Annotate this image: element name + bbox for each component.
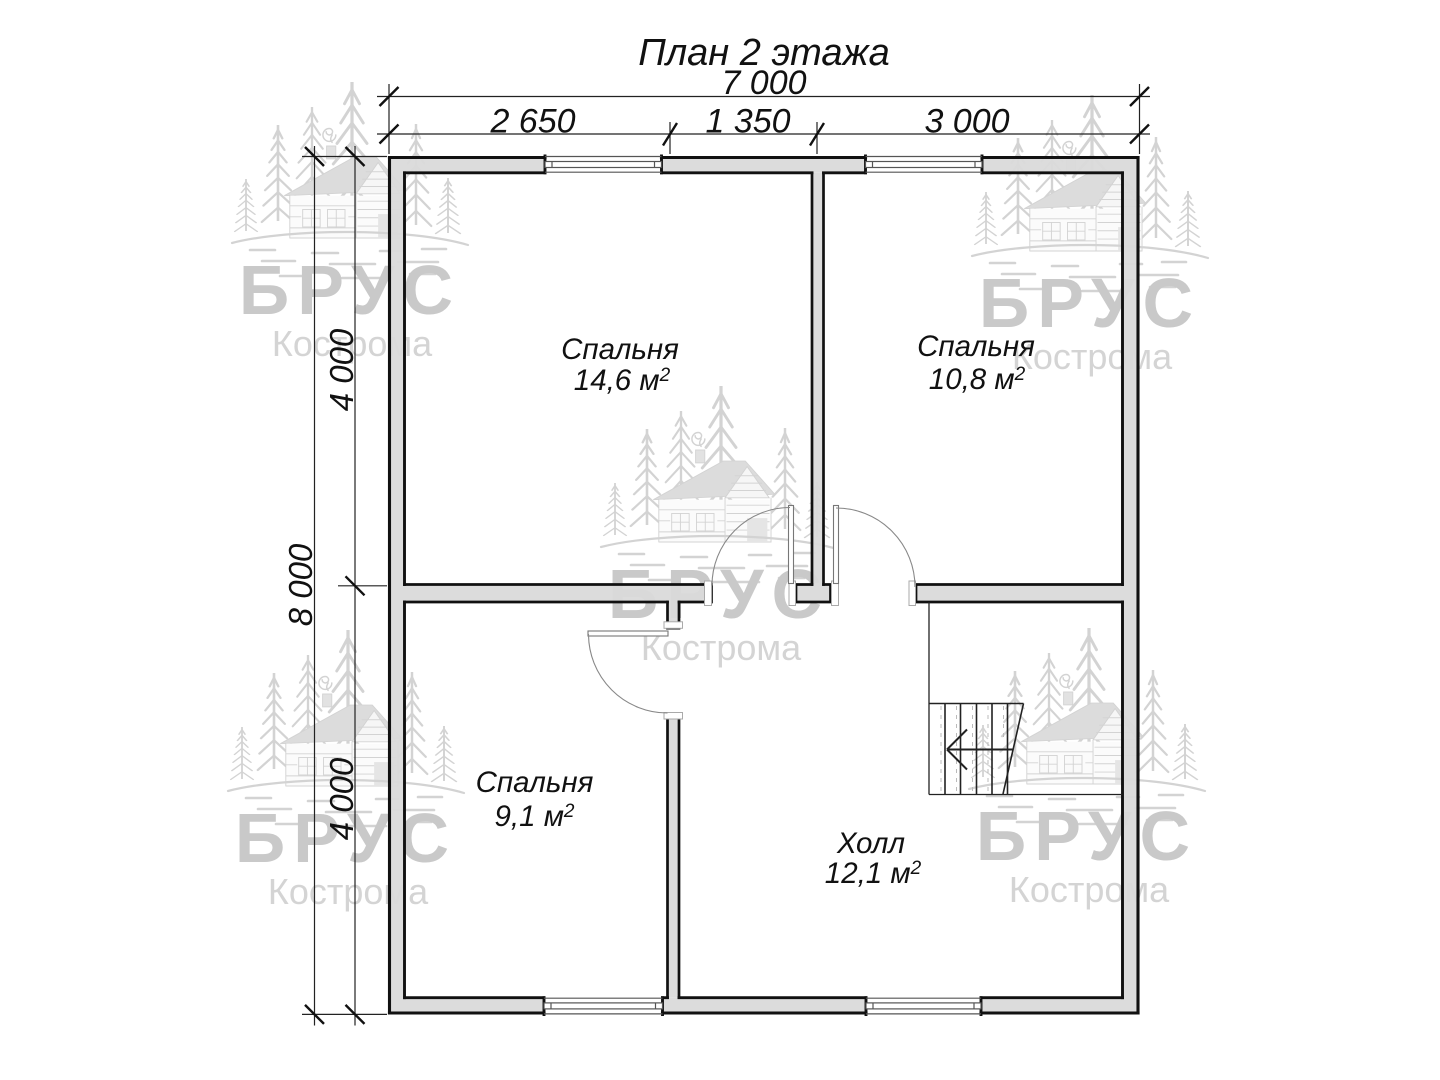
svg-text:8 000: 8 000	[282, 543, 319, 626]
svg-text:2 650: 2 650	[489, 103, 575, 141]
svg-text:4 000: 4 000	[323, 328, 360, 411]
svg-text:3 000: 3 000	[924, 103, 1009, 141]
svg-text:Холл: Холл	[836, 827, 905, 860]
svg-text:7 000: 7 000	[721, 64, 806, 102]
svg-text:9,1 м2: 9,1 м2	[494, 800, 574, 833]
svg-text:12,1 м2: 12,1 м2	[825, 857, 922, 890]
svg-text:4 000: 4 000	[323, 757, 360, 840]
svg-text:10,8 м2: 10,8 м2	[929, 363, 1026, 396]
svg-text:Спальня: Спальня	[476, 766, 594, 799]
svg-text:1 350: 1 350	[705, 103, 790, 141]
svg-text:Спальня: Спальня	[561, 333, 679, 366]
svg-text:Спальня: Спальня	[917, 330, 1035, 363]
svg-text:14,6 м2: 14,6 м2	[574, 364, 671, 397]
